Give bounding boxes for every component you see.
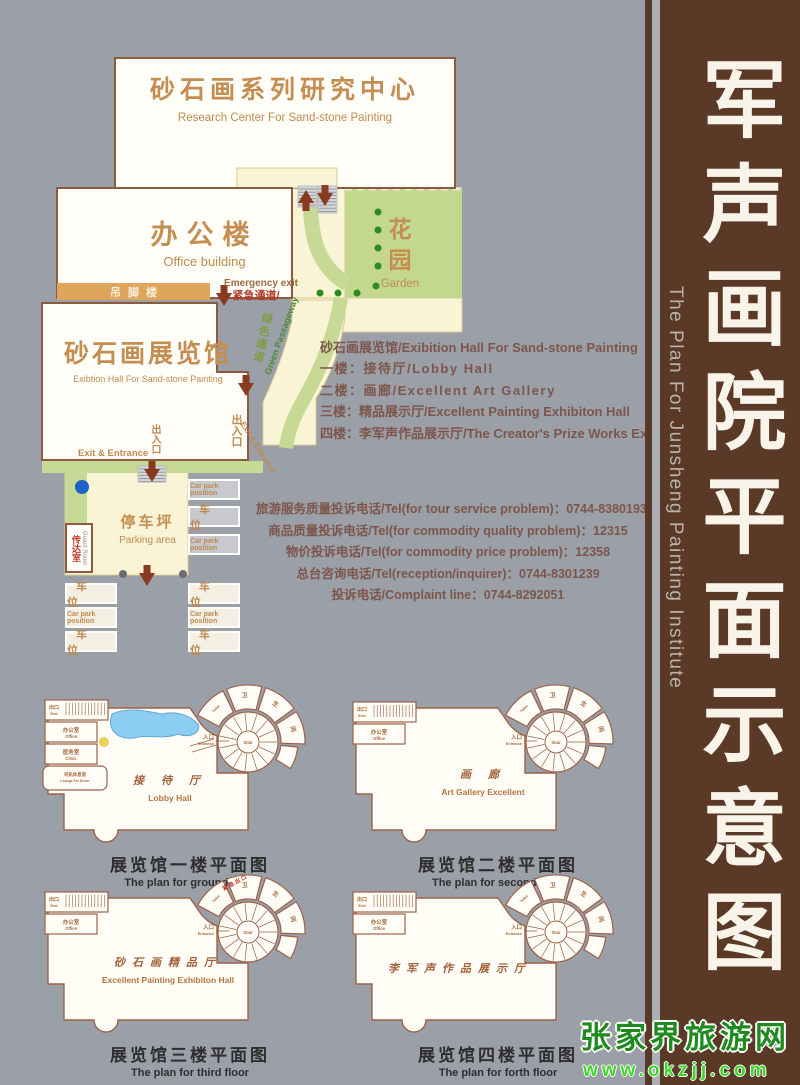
gate-post bbox=[119, 570, 127, 578]
svg-text:卫: 卫 bbox=[550, 692, 556, 699]
title-sidebar: The Plan For Junsheng Painting Institute… bbox=[660, 0, 800, 1085]
car-park-box: 车 位 bbox=[65, 631, 117, 652]
guard-room-label-en: Guard Room bbox=[81, 531, 87, 565]
svg-text:Exit: Exit bbox=[50, 903, 58, 908]
floor-plan-caption-en: The plan for third floor bbox=[40, 1067, 340, 1079]
svg-text:Office: Office bbox=[65, 734, 78, 739]
svg-text:Entrance: Entrance bbox=[198, 932, 214, 936]
sidebar-accent-line bbox=[645, 0, 652, 1085]
svg-text:医务室: 医务室 bbox=[63, 748, 80, 756]
main-exit-label-en: Exit & Entrance bbox=[78, 448, 148, 459]
svg-text:Exit: Exit bbox=[50, 711, 58, 716]
car-park-box: 车 位 bbox=[188, 506, 240, 527]
watermark: 张家界旅游网 www.okzjj.com bbox=[580, 1012, 790, 1082]
watermark-site-name: 张家界旅游网 bbox=[580, 1012, 790, 1057]
floor-plan-forth-drawing: Toilet卫生间Stair入口Entrance出口Exit办公室Office李… bbox=[348, 872, 638, 1034]
svg-text:卫: 卫 bbox=[550, 882, 556, 889]
svg-text:李军声作品展示厅: 李军声作品展示厅 bbox=[388, 962, 532, 975]
svg-text:Office: Office bbox=[65, 926, 78, 931]
svg-text:Office: Office bbox=[373, 926, 386, 931]
svg-text:Entrance: Entrance bbox=[198, 742, 214, 746]
sidebar-title-en: The Plan For Junsheng Painting Institute bbox=[664, 286, 686, 689]
floor-plan-second: Toilet卫生间Stair入口Entrance出口Exit办公室Office画… bbox=[348, 682, 648, 889]
stilt-house-bar: 吊脚楼 bbox=[57, 283, 210, 300]
phone-numbers-block: 旅游服务质量投诉电话/Tel(for tour service problem)… bbox=[256, 499, 640, 607]
main-exit-label-cn: 出入口 bbox=[147, 424, 162, 454]
gate-post bbox=[179, 570, 187, 578]
svg-text:Lounge For Driver: Lounge For Driver bbox=[60, 779, 90, 783]
sidebar-title-cn: 军声画院平面示意图 bbox=[696, 56, 780, 992]
svg-text:Exit: Exit bbox=[358, 713, 366, 718]
floors-info-block: 砂石画展览馆/Exibition Hall For Sand-stone Pai… bbox=[320, 337, 686, 444]
svg-text:入口: 入口 bbox=[510, 734, 522, 741]
svg-text:卫: 卫 bbox=[242, 882, 248, 889]
car-park-box: Car park position bbox=[188, 534, 240, 555]
svg-text:Stair: Stair bbox=[243, 930, 253, 935]
phone-line: 旅游服务质量投诉电话/Tel(for tour service problem)… bbox=[256, 499, 640, 521]
sidebar-gray-stripe bbox=[652, 0, 660, 1085]
floors-info-line: 一楼：接待厅/Lobby Hall bbox=[320, 358, 686, 379]
phone-line: 商品质量投诉电话/Tel(for commodity quality probl… bbox=[256, 521, 640, 543]
floor-plan-second-drawing: Toilet卫生间Stair入口Entrance出口Exit办公室Office画… bbox=[348, 682, 638, 844]
car-park-box-label: 车 位 bbox=[67, 626, 115, 658]
svg-text:办公室: 办公室 bbox=[371, 728, 388, 736]
svg-text:Entrance: Entrance bbox=[506, 932, 522, 936]
car-park-box: 车 位 bbox=[188, 631, 240, 652]
car-park-box-label: 车 位 bbox=[190, 626, 238, 658]
office-label-cn: 办公楼 bbox=[97, 220, 312, 251]
svg-text:卫: 卫 bbox=[242, 692, 248, 699]
car-park-box-label: Car park position bbox=[67, 611, 115, 625]
floor-plan-third: Toilet卫生间Stair入口Entrance出口Exit办公室Office紧… bbox=[40, 872, 340, 1079]
svg-text:Entrance: Entrance bbox=[506, 742, 522, 746]
car-park-box: Car park position bbox=[188, 479, 240, 500]
exhibition-hall-label-en: Exibtion Hall For Sand-stone Painting bbox=[38, 374, 258, 384]
svg-text:出口: 出口 bbox=[49, 896, 59, 903]
garden-label-en: Garden bbox=[370, 278, 430, 291]
guard-room-label-cn: 传达室 bbox=[71, 535, 80, 562]
emergency-exit-label-en: Emergency exit bbox=[206, 278, 316, 290]
car-park-box-label: 车 位 bbox=[190, 578, 238, 610]
floor-plan-ground: Toilet卫生间Stair入口Entrance出口Exit办公室Office医… bbox=[40, 682, 340, 889]
floors-info-line: 二楼：画廊/Excellent Art Gallery bbox=[320, 380, 686, 401]
floor-plan-caption-cn: 展览馆三楼平面图 bbox=[40, 1041, 340, 1066]
poster-canvas: 砂石画系列研究中心 Research Center For Sand-stone… bbox=[0, 0, 800, 1085]
svg-text:Lobby Hall: Lobby Hall bbox=[148, 793, 191, 803]
svg-text:办公室: 办公室 bbox=[371, 918, 388, 926]
phone-line: 物价投诉电话/Tel(for commodity price problem)：… bbox=[256, 542, 640, 564]
phone-line: 投诉电话/Complaint line：0744-8292051 bbox=[256, 585, 640, 607]
stilt-house-label: 吊脚楼 bbox=[103, 284, 164, 300]
car-park-box-label: Car park position bbox=[190, 611, 238, 625]
guard-room: 传达室 Guard Room bbox=[65, 523, 93, 573]
svg-text:出口: 出口 bbox=[357, 706, 367, 713]
svg-text:画 廊: 画 廊 bbox=[460, 768, 506, 781]
svg-text:砂石画精品厅: 砂石画精品厅 bbox=[114, 956, 222, 969]
svg-text:Stair: Stair bbox=[243, 740, 253, 745]
svg-text:办公室: 办公室 bbox=[63, 918, 80, 926]
floors-info-line: 四楼：李军声作品展示厅/The Creator's Prize Works Ex… bbox=[320, 423, 686, 444]
svg-text:Clinic: Clinic bbox=[65, 756, 77, 761]
phone-line: 总台咨询电话/Tel(reception/inquirer)：0744-8301… bbox=[256, 564, 640, 586]
car-park-box-label: 车 位 bbox=[190, 501, 238, 533]
svg-text:Stair: Stair bbox=[551, 740, 561, 745]
svg-text:Art Gallery Excellent: Art Gallery Excellent bbox=[441, 787, 524, 797]
svg-text:入口: 入口 bbox=[202, 924, 214, 931]
floor-plan-ground-drawing: Toilet卫生间Stair入口Entrance出口Exit办公室Office医… bbox=[40, 682, 330, 844]
floor-plan-third-drawing: Toilet卫生间Stair入口Entrance出口Exit办公室Office紧… bbox=[40, 872, 330, 1034]
car-park-box-label: 车 位 bbox=[67, 578, 115, 610]
car-park-box-label: Car park position bbox=[190, 483, 238, 497]
car-park-box: 车 位 bbox=[65, 583, 117, 604]
svg-text:出口: 出口 bbox=[49, 704, 59, 711]
svg-text:Excellent Painting Exhibiton H: Excellent Painting Exhibiton Hall bbox=[102, 975, 234, 985]
research-center-label-cn: 砂石画系列研究中心 bbox=[115, 76, 455, 105]
svg-text:司机休息室: 司机休息室 bbox=[64, 771, 87, 778]
svg-text:Exit: Exit bbox=[358, 903, 366, 908]
floors-info-line: 砂石画展览馆/Exibition Hall For Sand-stone Pai… bbox=[320, 337, 686, 358]
svg-text:入口: 入口 bbox=[202, 734, 214, 741]
svg-text:Stair: Stair bbox=[551, 930, 561, 935]
svg-text:接 待 厅: 接 待 厅 bbox=[133, 774, 207, 787]
svg-text:Office: Office bbox=[373, 736, 386, 741]
svg-text:出口: 出口 bbox=[357, 896, 367, 903]
watermark-site-url: www.okzjj.com bbox=[583, 1060, 790, 1082]
floors-info-line: 三楼：精品展示厅/Excellent Painting Exhibiton Ha… bbox=[320, 401, 686, 422]
office-label-en: Office building bbox=[97, 255, 312, 270]
svg-text:办公室: 办公室 bbox=[63, 726, 80, 734]
research-center-label-en: Research Center For Sand-stone Painting bbox=[115, 112, 455, 125]
car-park-box-label: Car park position bbox=[190, 538, 238, 552]
exhibition-hall-label-cn: 砂石画展览馆 bbox=[48, 340, 248, 369]
car-park-box: 车 位 bbox=[188, 583, 240, 604]
garden-label-cn: 花 园 bbox=[384, 214, 416, 276]
blue-marker-dot bbox=[75, 480, 89, 494]
svg-text:入口: 入口 bbox=[510, 924, 522, 931]
